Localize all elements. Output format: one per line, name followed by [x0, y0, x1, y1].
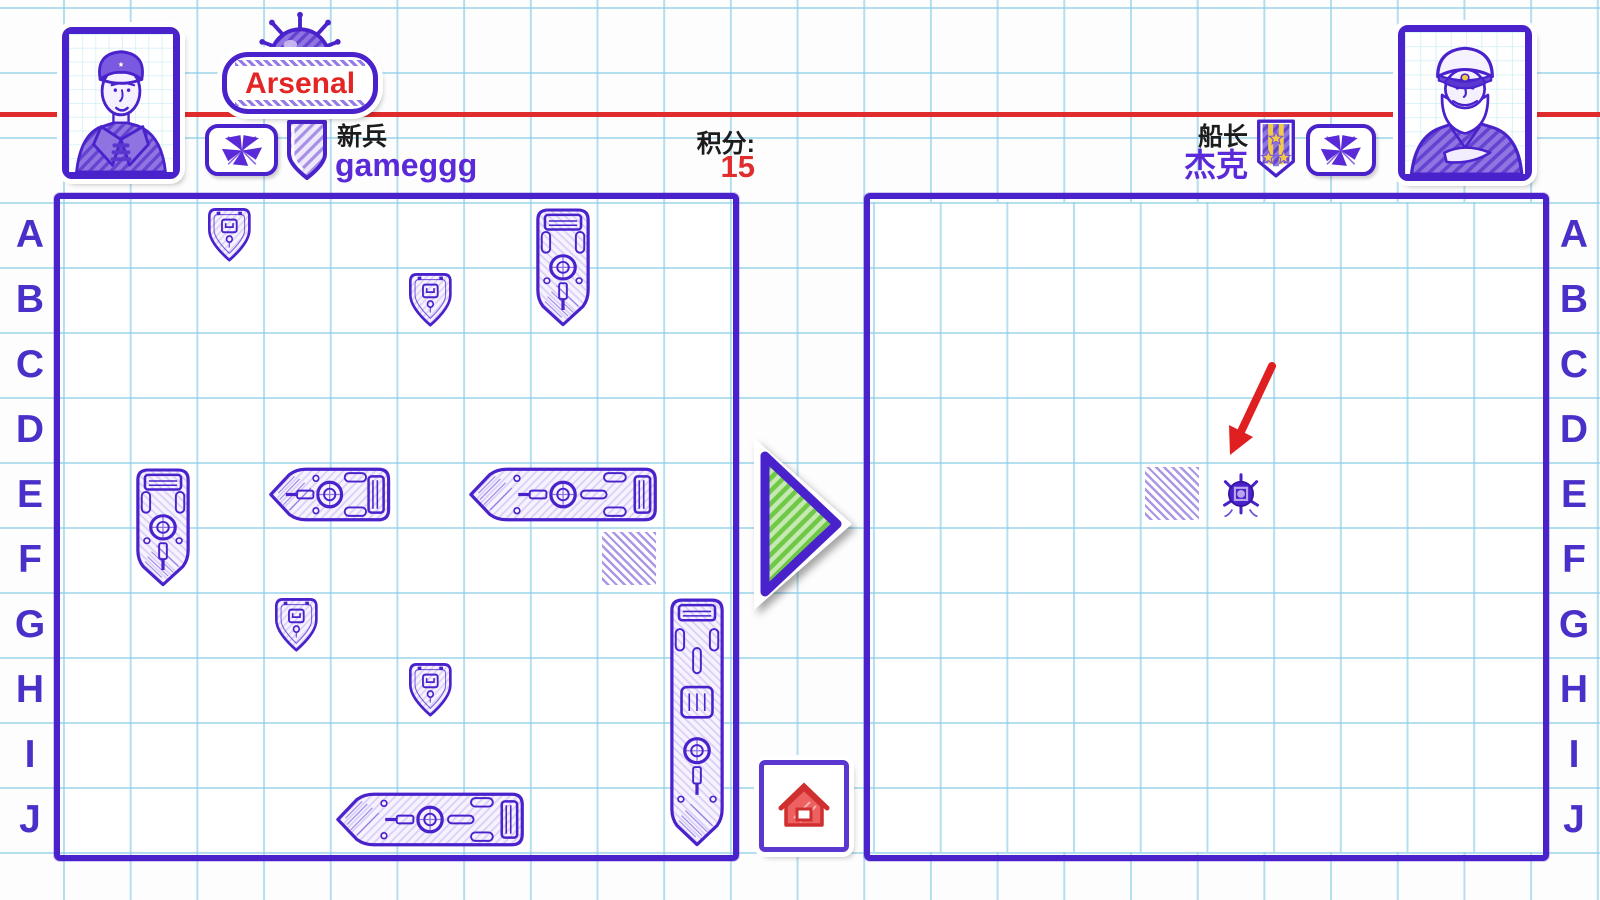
player-board: [63, 202, 730, 852]
enemy-cell-I7[interactable]: [1273, 722, 1340, 787]
signal-flags-icon: [1316, 132, 1366, 169]
row-label-left-I: I: [8, 735, 52, 774]
row-label-left-C: C: [8, 345, 52, 384]
enemy-cell-A7[interactable]: [1273, 202, 1340, 267]
enemy-cell-F2[interactable]: [940, 527, 1007, 592]
enemy-cell-F6[interactable]: [1207, 527, 1274, 592]
enemy-cell-I1[interactable]: [873, 722, 940, 787]
player-ship-1-G4: [270, 596, 323, 653]
enemy-cell-A3[interactable]: [1006, 202, 1073, 267]
enemy-cell-G3[interactable]: [1006, 592, 1073, 657]
enemy-cell-J9[interactable]: [1407, 787, 1474, 852]
enemy-cell-E8[interactable]: [1340, 462, 1407, 527]
enemy-cell-C9[interactable]: [1407, 332, 1474, 397]
enemy-cell-A10[interactable]: [1473, 202, 1540, 267]
enemy-cell-G10[interactable]: [1473, 592, 1540, 657]
enemy-cell-D4[interactable]: [1073, 397, 1140, 462]
enemy-cell-A8[interactable]: [1340, 202, 1407, 267]
arsenal-label: Arsenal: [245, 67, 355, 101]
enemy-cell-G8[interactable]: [1340, 592, 1407, 657]
enemy-cell-D7[interactable]: [1273, 397, 1340, 462]
enemy-cell-E4[interactable]: [1073, 462, 1140, 527]
enemy-cell-B6[interactable]: [1207, 267, 1274, 332]
right-player-avatar[interactable]: [1398, 25, 1532, 181]
score-value: 15: [640, 149, 755, 185]
enemy-cell-J1[interactable]: [873, 787, 940, 852]
enemy-cell-F3[interactable]: [1006, 527, 1073, 592]
enemy-cell-E1[interactable]: [873, 462, 940, 527]
row-label-right-F: F: [1552, 540, 1596, 579]
player-ship-2-E4: [267, 466, 392, 523]
enemy-cell-H7[interactable]: [1273, 657, 1340, 722]
enemy-cell-G4[interactable]: [1073, 592, 1140, 657]
row-label-right-J: J: [1552, 800, 1596, 839]
signal-flags-icon: [216, 132, 268, 169]
enemy-cell-H3[interactable]: [1006, 657, 1073, 722]
enemy-cell-E9[interactable]: [1407, 462, 1474, 527]
enemy-cell-D10[interactable]: [1473, 397, 1540, 462]
player-ship-1-B6: [404, 271, 457, 328]
row-label-right-D: D: [1552, 410, 1596, 449]
enemy-cell-H1[interactable]: [873, 657, 940, 722]
enemy-cell-J7[interactable]: [1273, 787, 1340, 852]
enemy-cell-J10[interactable]: [1473, 787, 1540, 852]
player-ship-3-E7: [467, 466, 659, 523]
enemy-cell-B4[interactable]: [1073, 267, 1140, 332]
enemy-cell-F8[interactable]: [1340, 527, 1407, 592]
sailor-portrait-icon: [69, 34, 173, 172]
enemy-miss-marker-E5: [1145, 467, 1200, 520]
enemy-cell-C10[interactable]: [1473, 332, 1540, 397]
home-button[interactable]: [759, 760, 849, 852]
shield-badge-icon: [283, 118, 331, 182]
player-ship-1-H6: [404, 661, 457, 718]
enemy-cell-C3[interactable]: [1006, 332, 1073, 397]
enemy-cell-C5[interactable]: [1140, 332, 1207, 397]
enemy-cell-B8[interactable]: [1340, 267, 1407, 332]
row-label-right-A: A: [1552, 215, 1596, 254]
enemy-cell-C7[interactable]: [1273, 332, 1340, 397]
enemy-cell-I9[interactable]: [1407, 722, 1474, 787]
enemy-cell-J3[interactable]: [1006, 787, 1073, 852]
enemy-cell-I5[interactable]: [1140, 722, 1207, 787]
player-miss-marker-F9: [602, 532, 657, 585]
enemy-cell-H8[interactable]: [1340, 657, 1407, 722]
enemy-cell-C6[interactable]: [1207, 332, 1274, 397]
enemy-cell-F10[interactable]: [1473, 527, 1540, 592]
enemy-cell-J8[interactable]: [1340, 787, 1407, 852]
pill-hatch-top: [235, 60, 365, 66]
enemy-cell-D6[interactable]: [1207, 397, 1274, 462]
enemy-cell-F4[interactable]: [1073, 527, 1140, 592]
enemy-cell-J2[interactable]: [940, 787, 1007, 852]
row-label-left-E: E: [8, 475, 52, 514]
enemy-cell-C1[interactable]: [873, 332, 940, 397]
turn-indicator-arrow green-right-arrow-icon: [748, 434, 858, 616]
enemy-cell-A2[interactable]: [940, 202, 1007, 267]
enemy-cell-B9[interactable]: [1407, 267, 1474, 332]
row-label-left-F: F: [8, 540, 52, 579]
enemy-cell-I3[interactable]: [1006, 722, 1073, 787]
row-label-right-H: H: [1552, 670, 1596, 709]
row-label-right-C: C: [1552, 345, 1596, 384]
enemy-board: [873, 202, 1540, 852]
enemy-cell-I2[interactable]: [940, 722, 1007, 787]
enemy-cell-C2[interactable]: [940, 332, 1007, 397]
arsenal-pill: Arsenal: [222, 52, 378, 114]
enemy-cell-I10[interactable]: [1473, 722, 1540, 787]
enemy-cell-D3[interactable]: [1006, 397, 1073, 462]
enemy-cell-H10[interactable]: [1473, 657, 1540, 722]
enemy-cell-F1[interactable]: [873, 527, 940, 592]
enemy-cell-G6[interactable]: [1207, 592, 1274, 657]
enemy-cell-G1[interactable]: [873, 592, 940, 657]
left-player-avatar[interactable]: [62, 27, 180, 179]
enemy-cell-H2[interactable]: [940, 657, 1007, 722]
enemy-cell-G9[interactable]: [1407, 592, 1474, 657]
enemy-cell-D2[interactable]: [940, 397, 1007, 462]
enemy-cell-F9[interactable]: [1407, 527, 1474, 592]
enemy-cell-D8[interactable]: [1340, 397, 1407, 462]
sea-battle-game-screen: Arsenal 新兵 gameggg 积分: 15 船长 杰克: [0, 0, 1600, 900]
enemy-cell-A5[interactable]: [1140, 202, 1207, 267]
enemy-cell-I4[interactable]: [1073, 722, 1140, 787]
captain-portrait-icon: [1405, 32, 1525, 174]
row-label-right-E: E: [1552, 475, 1596, 514]
destroyed-ship-marker-E6: [1215, 467, 1267, 523]
row-label-right-B: B: [1552, 280, 1596, 319]
enemy-cell-B3[interactable]: [1006, 267, 1073, 332]
enemy-cell-G5[interactable]: [1140, 592, 1207, 657]
enemy-cell-B1[interactable]: [873, 267, 940, 332]
row-label-right-I: I: [1552, 735, 1596, 774]
home-icon: [776, 778, 832, 834]
enemy-cell-E10[interactable]: [1473, 462, 1540, 527]
enemy-cell-J5[interactable]: [1140, 787, 1207, 852]
left-player-name: gameggg: [335, 149, 477, 183]
enemy-cell-G7[interactable]: [1273, 592, 1340, 657]
enemy-cell-D9[interactable]: [1407, 397, 1474, 462]
enemy-cell-E3[interactable]: [1006, 462, 1073, 527]
right-player-name: 杰克: [1148, 149, 1248, 183]
enemy-cell-B10[interactable]: [1473, 267, 1540, 332]
pill-hatch-bottom: [235, 100, 365, 106]
enemy-cell-B2[interactable]: [940, 267, 1007, 332]
player-ship-1-A3: [203, 206, 256, 263]
enemy-cell-B5[interactable]: [1140, 267, 1207, 332]
row-label-left-H: H: [8, 670, 52, 709]
enemy-cell-A6[interactable]: [1207, 202, 1274, 267]
row-label-left-B: B: [8, 280, 52, 319]
enemy-cell-H5[interactable]: [1140, 657, 1207, 722]
enemy-cell-C4[interactable]: [1073, 332, 1140, 397]
right-player-flag-button[interactable]: [1306, 124, 1376, 176]
enemy-cell-C8[interactable]: [1340, 332, 1407, 397]
player-ship-2-A8: [535, 206, 592, 328]
enemy-cell-H4[interactable]: [1073, 657, 1140, 722]
enemy-cell-F7[interactable]: [1273, 527, 1340, 592]
row-label-left-J: J: [8, 800, 52, 839]
left-player-flag-button[interactable]: [205, 124, 278, 176]
enemy-cell-D5[interactable]: [1140, 397, 1207, 462]
enemy-cell-H9[interactable]: [1407, 657, 1474, 722]
row-label-left-A: A: [8, 215, 52, 254]
row-label-left-G: G: [8, 605, 52, 644]
enemy-cell-E7[interactable]: [1273, 462, 1340, 527]
enemy-cell-A4[interactable]: [1073, 202, 1140, 267]
row-label-left-D: D: [8, 410, 52, 449]
enemy-cell-A1[interactable]: [873, 202, 940, 267]
enemy-cell-G2[interactable]: [940, 592, 1007, 657]
enemy-cell-J6[interactable]: [1207, 787, 1274, 852]
enemy-cell-J4[interactable]: [1073, 787, 1140, 852]
enemy-cell-B7[interactable]: [1273, 267, 1340, 332]
enemy-cell-I8[interactable]: [1340, 722, 1407, 787]
enemy-cell-D1[interactable]: [873, 397, 940, 462]
enemy-cell-F5[interactable]: [1140, 527, 1207, 592]
medal-ribbon-icon: [1252, 116, 1300, 182]
enemy-cell-H6[interactable]: [1207, 657, 1274, 722]
player-ship-2-E2: [135, 466, 192, 588]
enemy-cell-E2[interactable]: [940, 462, 1007, 527]
row-label-right-G: G: [1552, 605, 1596, 644]
player-ship-3-J5: [334, 791, 526, 848]
arsenal-button[interactable]: Arsenal: [222, 2, 372, 112]
enemy-cell-A9[interactable]: [1407, 202, 1474, 267]
player-ship-4-G10: [668, 596, 725, 848]
enemy-cell-I6[interactable]: [1207, 722, 1274, 787]
